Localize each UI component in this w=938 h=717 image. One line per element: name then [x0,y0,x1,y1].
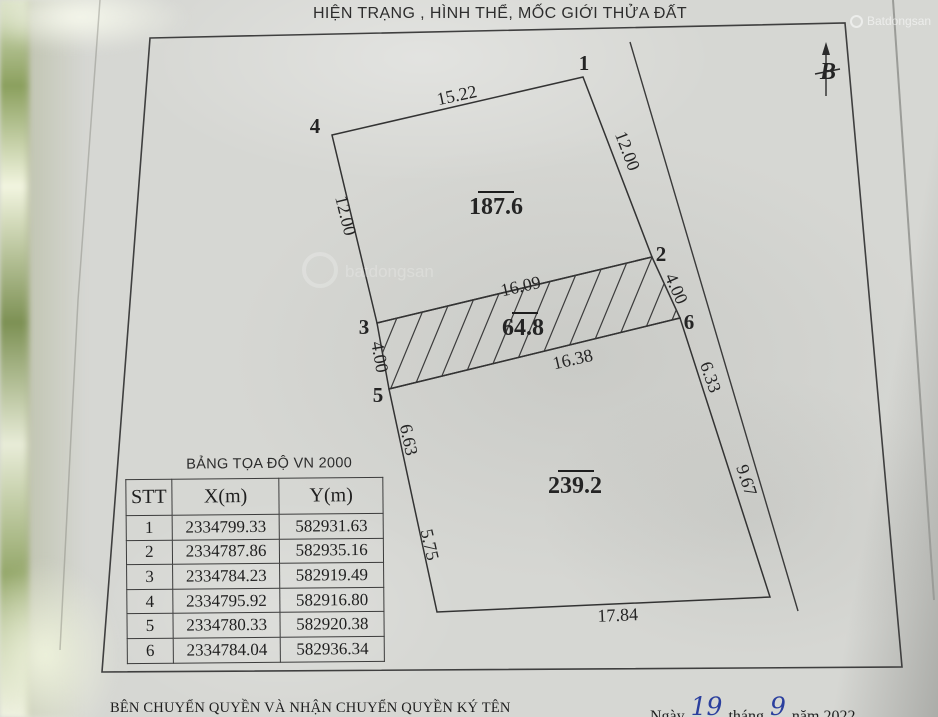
dim-mid-right: 4.00 [661,270,692,307]
dim-top-width: 15.22 [435,81,479,109]
watermark-logo-icon [850,15,863,28]
dim-right-top: 12.00 [611,128,644,173]
table-row: 4 2334795.92 582916.80 [127,587,384,614]
table-row: 6 2334784.04 582936.34 [127,636,384,663]
center-watermark: Batdongsan [304,254,434,286]
cell-stt: 2 [126,540,172,565]
coordinate-table-section: BẢNG TỌA ĐỘ VN 2000 STT X(m) Y(m) 1 2334… [125,455,387,664]
month-word: tháng [728,708,764,717]
area-middle-label: 64.8 [502,315,544,341]
col-header-y: Y(m) [279,477,383,514]
handwritten-month: 9 [770,692,786,717]
cell-x: 2334795.92 [173,588,281,614]
area-bottom-label: 239.2 [548,473,602,499]
dim-left-mid: 6.63 [396,422,422,457]
year-word: năm 2022 [792,708,856,717]
col-header-stt: STT [126,479,172,515]
watermark-brand-text: Batdongsan [867,14,931,28]
dim-bottom-width: 17.84 [597,604,638,626]
table-row: 2 2334787.86 582935.16 [126,538,383,565]
cell-y: 582936.34 [281,636,385,661]
scanned-land-survey-photo: HIỆN TRẠNG , HÌNH THỂ, MỐC GIỚI THỬA ĐẤT [0,0,938,717]
table-row: 3 2334784.23 582919.49 [127,563,384,590]
cell-x: 2334787.86 [172,539,280,565]
paper-edge-line [893,0,934,600]
area-top-label: 187.6 [469,194,523,220]
cell-y: 582931.63 [280,513,384,538]
coordinate-table: STT X(m) Y(m) 1 2334799.33 582931.63 2 2… [125,477,385,664]
cell-x: 2334780.33 [173,613,281,639]
site-watermark: Batdongsan [850,14,931,28]
vertex-3: 3 [359,315,370,339]
cell-y: 582919.49 [280,563,384,588]
table-row: 1 2334799.33 582931.63 [126,513,383,540]
cell-x: 2334784.23 [172,563,280,589]
cell-stt: 3 [127,564,173,589]
vertex-1: 1 [579,51,590,75]
road-boundary-line [630,42,798,611]
dim-mid-left: 4.00 [367,340,392,374]
north-arrow: B [815,42,840,96]
handwritten-day: 19 [691,692,723,717]
cell-y: 582920.38 [280,612,384,637]
cell-y: 582916.80 [280,587,384,612]
dim-right-mid: 6.33 [696,359,725,395]
cell-stt: 6 [127,638,173,663]
date-word: Ngày [650,708,685,717]
vertex-5: 5 [373,383,384,407]
vertex-2: 2 [656,242,667,266]
center-watermark-text: Batdongsan [345,262,434,281]
table-header-row: STT X(m) Y(m) [126,477,383,515]
dim-left-top: 12.00 [331,193,360,237]
date-line: Ngày 19 tháng 9 năm 2022 [650,698,855,717]
cell-y: 582935.16 [280,538,384,563]
cell-x: 2334799.33 [172,514,280,540]
cell-stt: 5 [127,614,173,639]
dim-mid-bottom-width: 16.38 [551,345,595,374]
cell-x: 2334784.04 [173,637,281,663]
paper-crease-line [60,0,100,650]
vertex-6: 6 [684,310,695,334]
coordinate-table-title: BẢNG TỌA ĐỘ VN 2000 [153,455,385,473]
vertex-4: 4 [310,114,321,138]
dim-mid-top-width: 16.09 [499,272,543,301]
col-header-x: X(m) [172,478,280,515]
table-row: 5 2334780.33 582920.38 [127,612,384,639]
cell-stt: 1 [126,515,172,540]
signature-caption: BÊN CHUYỂN QUYỀN VÀ NHẬN CHUYỂN QUYỀN KÝ… [110,700,470,717]
dim-left-bottom: 5.75 [417,527,444,562]
cell-stt: 4 [127,589,173,614]
